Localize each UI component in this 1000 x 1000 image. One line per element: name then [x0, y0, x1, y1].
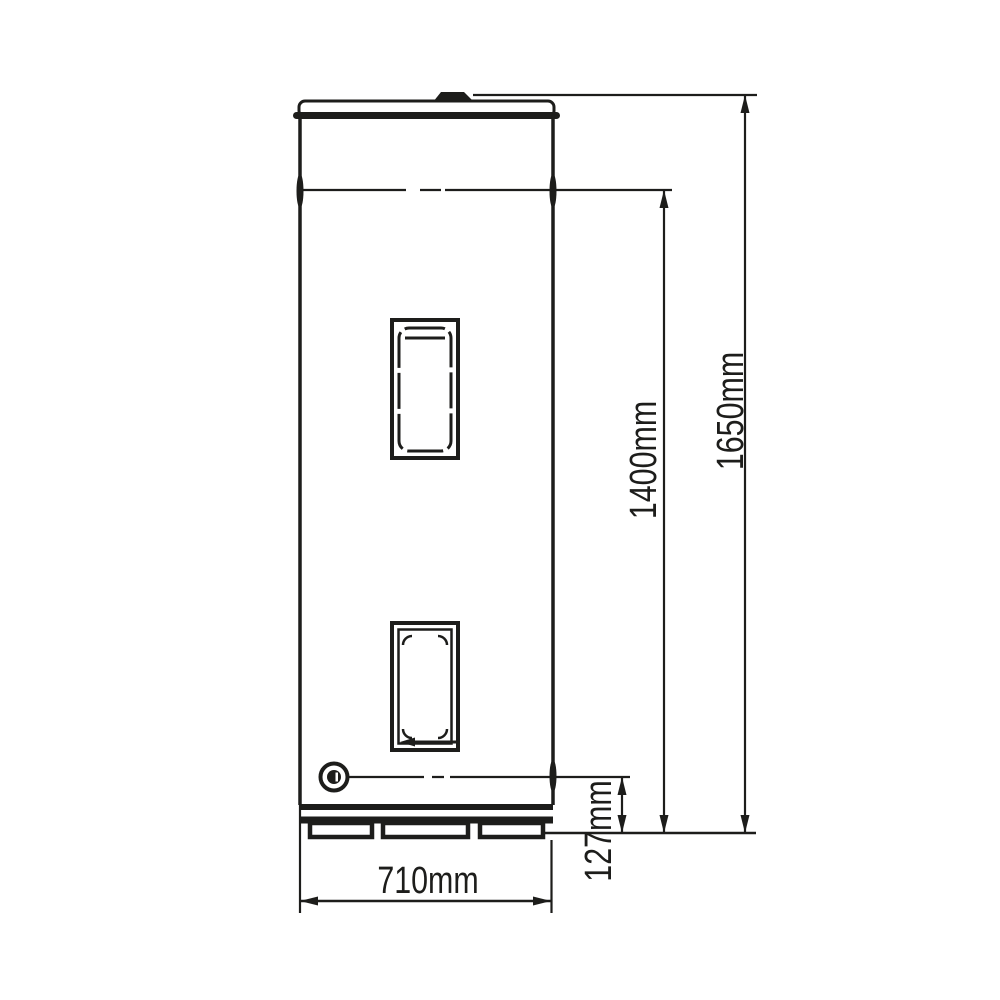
foot-left — [310, 823, 372, 837]
arrowhead-right — [533, 897, 551, 906]
drain-valve — [321, 764, 348, 791]
arrowhead-down — [660, 815, 669, 833]
lower-access-panel-cover — [392, 623, 458, 750]
arrowhead-down — [741, 815, 750, 833]
dimension-127 — [543, 777, 756, 833]
dimension-diagram: 1650mm 1400mm 127mm 710mm — [0, 0, 1000, 1000]
dimension-label-body-height: 1400mm — [625, 401, 663, 519]
arrowhead-left — [300, 897, 318, 906]
foot-right — [480, 823, 543, 837]
foot-center — [383, 823, 468, 837]
drain-valve-inner — [327, 770, 341, 784]
dimension-label-total-height: 1650mm — [712, 352, 750, 470]
water-heater-outline — [297, 92, 673, 805]
drawing-canvas — [0, 0, 1000, 1000]
upper-access-panel — [392, 320, 458, 458]
arrowhead-up — [660, 190, 669, 208]
dimension-label-width: 710mm — [377, 862, 478, 900]
upper-access-panel-cover — [392, 320, 458, 458]
drain-valve-slot — [336, 773, 339, 782]
lower-access-panel — [392, 623, 458, 750]
dimension-label-base-height: 127mm — [580, 780, 618, 881]
tank-base — [300, 807, 553, 837]
arrowhead-up — [741, 95, 750, 113]
